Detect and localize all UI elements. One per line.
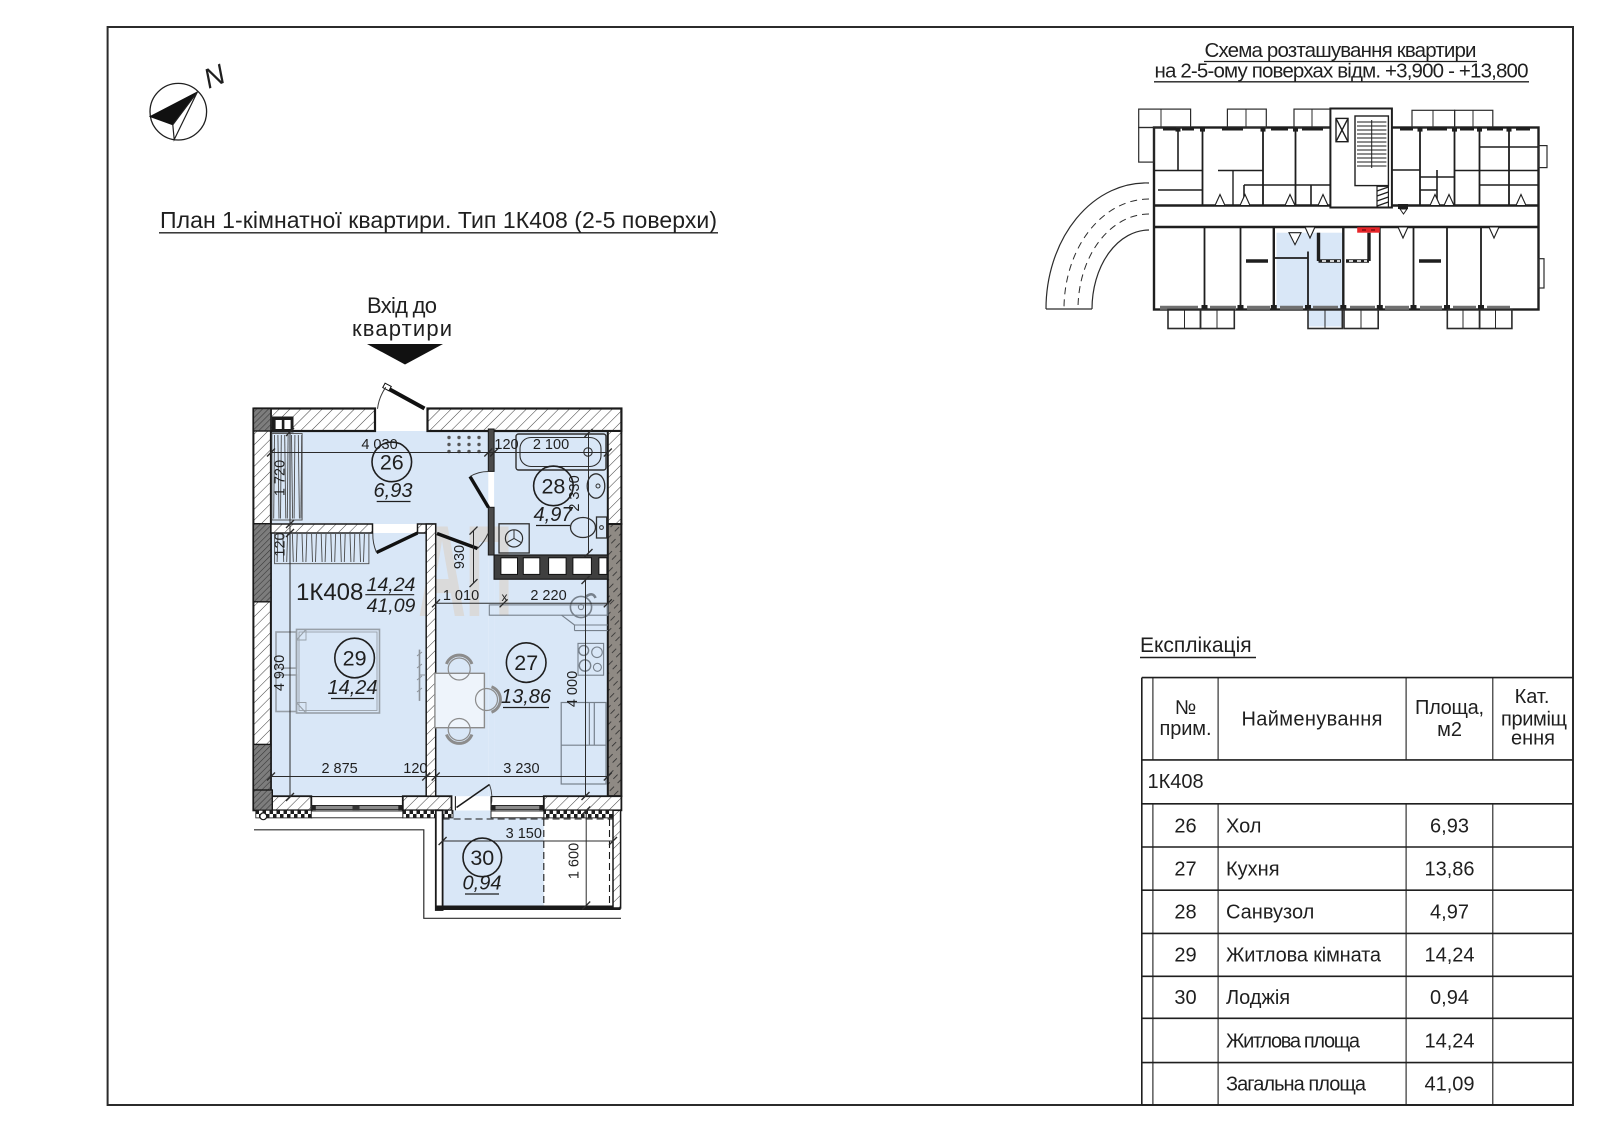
svg-text:Кат.: Кат. xyxy=(1515,686,1550,708)
svg-text:29: 29 xyxy=(1174,945,1196,967)
svg-text:120: 120 xyxy=(273,532,289,556)
svg-text:ення: ення xyxy=(1511,728,1555,750)
svg-text:Житлова площа: Житлова площа xyxy=(1226,1031,1361,1053)
svg-text:2 875: 2 875 xyxy=(321,761,357,777)
svg-text:квартири: квартири xyxy=(352,316,452,341)
svg-text:прим.: прим. xyxy=(1160,718,1212,740)
svg-text:27: 27 xyxy=(1174,859,1196,881)
svg-text:Санвузол: Санвузол xyxy=(1226,902,1314,924)
svg-text:Площа,: Площа, xyxy=(1415,697,1484,719)
svg-text:4,97: 4,97 xyxy=(534,504,574,526)
svg-text:6,93: 6,93 xyxy=(374,480,413,502)
svg-text:x: x xyxy=(502,590,508,604)
svg-text:Загальна площа: Загальна площа xyxy=(1226,1074,1367,1096)
svg-text:4 930: 4 930 xyxy=(272,655,288,691)
svg-text:14,24: 14,24 xyxy=(367,574,416,596)
svg-text:30: 30 xyxy=(470,846,494,870)
svg-text:4,97: 4,97 xyxy=(1430,902,1469,924)
svg-text:41,09: 41,09 xyxy=(367,595,416,617)
svg-text:Найменування: Найменування xyxy=(1242,709,1383,731)
svg-text:3 150: 3 150 xyxy=(506,826,542,842)
svg-text:Хол: Хол xyxy=(1226,816,1261,838)
svg-text:1К408: 1К408 xyxy=(296,579,363,606)
svg-text:14,24: 14,24 xyxy=(1424,945,1474,967)
svg-text:Лоджія: Лоджія xyxy=(1226,987,1290,1009)
svg-text:Вхід до: Вхід до xyxy=(367,293,437,318)
svg-text:27: 27 xyxy=(514,651,538,675)
svg-text:№: № xyxy=(1175,697,1196,719)
svg-text:14,24: 14,24 xyxy=(1424,1031,1474,1053)
svg-text:4 000: 4 000 xyxy=(565,671,581,707)
svg-text:м2: м2 xyxy=(1437,719,1462,741)
svg-text:1 010: 1 010 xyxy=(443,588,479,604)
svg-text:2 220: 2 220 xyxy=(530,588,566,604)
svg-text:120: 120 xyxy=(494,437,518,453)
svg-text:13,86: 13,86 xyxy=(1424,859,1474,881)
svg-text:6,93: 6,93 xyxy=(1430,816,1469,838)
svg-text:26: 26 xyxy=(1174,816,1196,838)
svg-text:Експлікація: Експлікація xyxy=(1140,634,1252,657)
svg-text:13,86: 13,86 xyxy=(501,686,552,708)
svg-text:14,24: 14,24 xyxy=(327,677,377,699)
svg-text:0,94: 0,94 xyxy=(463,873,502,895)
svg-text:41,09: 41,09 xyxy=(1424,1074,1474,1096)
svg-text:28: 28 xyxy=(1174,902,1196,924)
svg-text:28: 28 xyxy=(541,475,565,499)
svg-text:Житлова кімната: Житлова кімната xyxy=(1226,945,1382,967)
svg-text:на 2-5-ому поверхах відм. +3,9: на 2-5-ому поверхах відм. +3,900 - +13,8… xyxy=(1155,60,1529,83)
svg-text:Кухня: Кухня xyxy=(1226,859,1280,881)
svg-text:29: 29 xyxy=(343,647,367,671)
svg-text:1К408: 1К408 xyxy=(1148,771,1204,793)
svg-text:1 720: 1 720 xyxy=(273,460,289,496)
svg-text:930: 930 xyxy=(452,545,468,569)
svg-text:26: 26 xyxy=(380,451,404,475)
svg-text:30: 30 xyxy=(1174,987,1196,1009)
svg-text:2 100: 2 100 xyxy=(533,437,569,453)
svg-text:120: 120 xyxy=(403,761,427,777)
svg-text:1 600: 1 600 xyxy=(567,843,583,879)
svg-text:3 230: 3 230 xyxy=(503,761,539,777)
svg-text:0,94: 0,94 xyxy=(1430,987,1469,1009)
svg-text:План 1-кімнатної квартири. Тип: План 1-кімнатної квартири. Тип 1К408 (2-… xyxy=(160,207,717,233)
